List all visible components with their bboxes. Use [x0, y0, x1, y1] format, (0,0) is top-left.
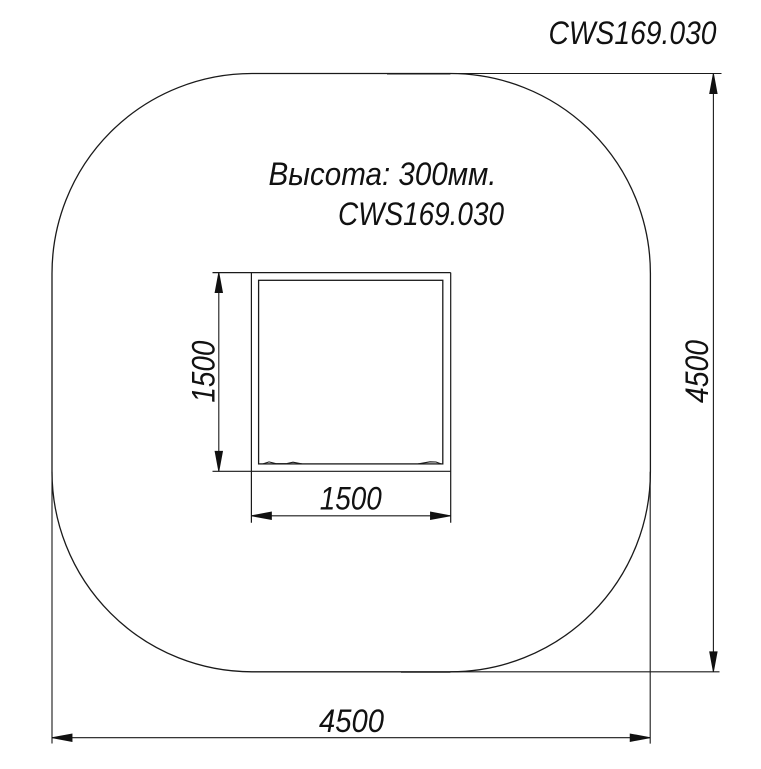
svg-text:CWS169.030: CWS169.030 — [549, 15, 717, 51]
svg-text:Высота: 300мм.: Высота: 300мм. — [269, 156, 497, 192]
svg-text:1500: 1500 — [185, 341, 221, 403]
svg-text:4500: 4500 — [679, 340, 715, 403]
svg-text:1500: 1500 — [320, 481, 382, 517]
svg-text:4500: 4500 — [319, 703, 384, 739]
svg-text:CWS169.030: CWS169.030 — [338, 196, 504, 232]
